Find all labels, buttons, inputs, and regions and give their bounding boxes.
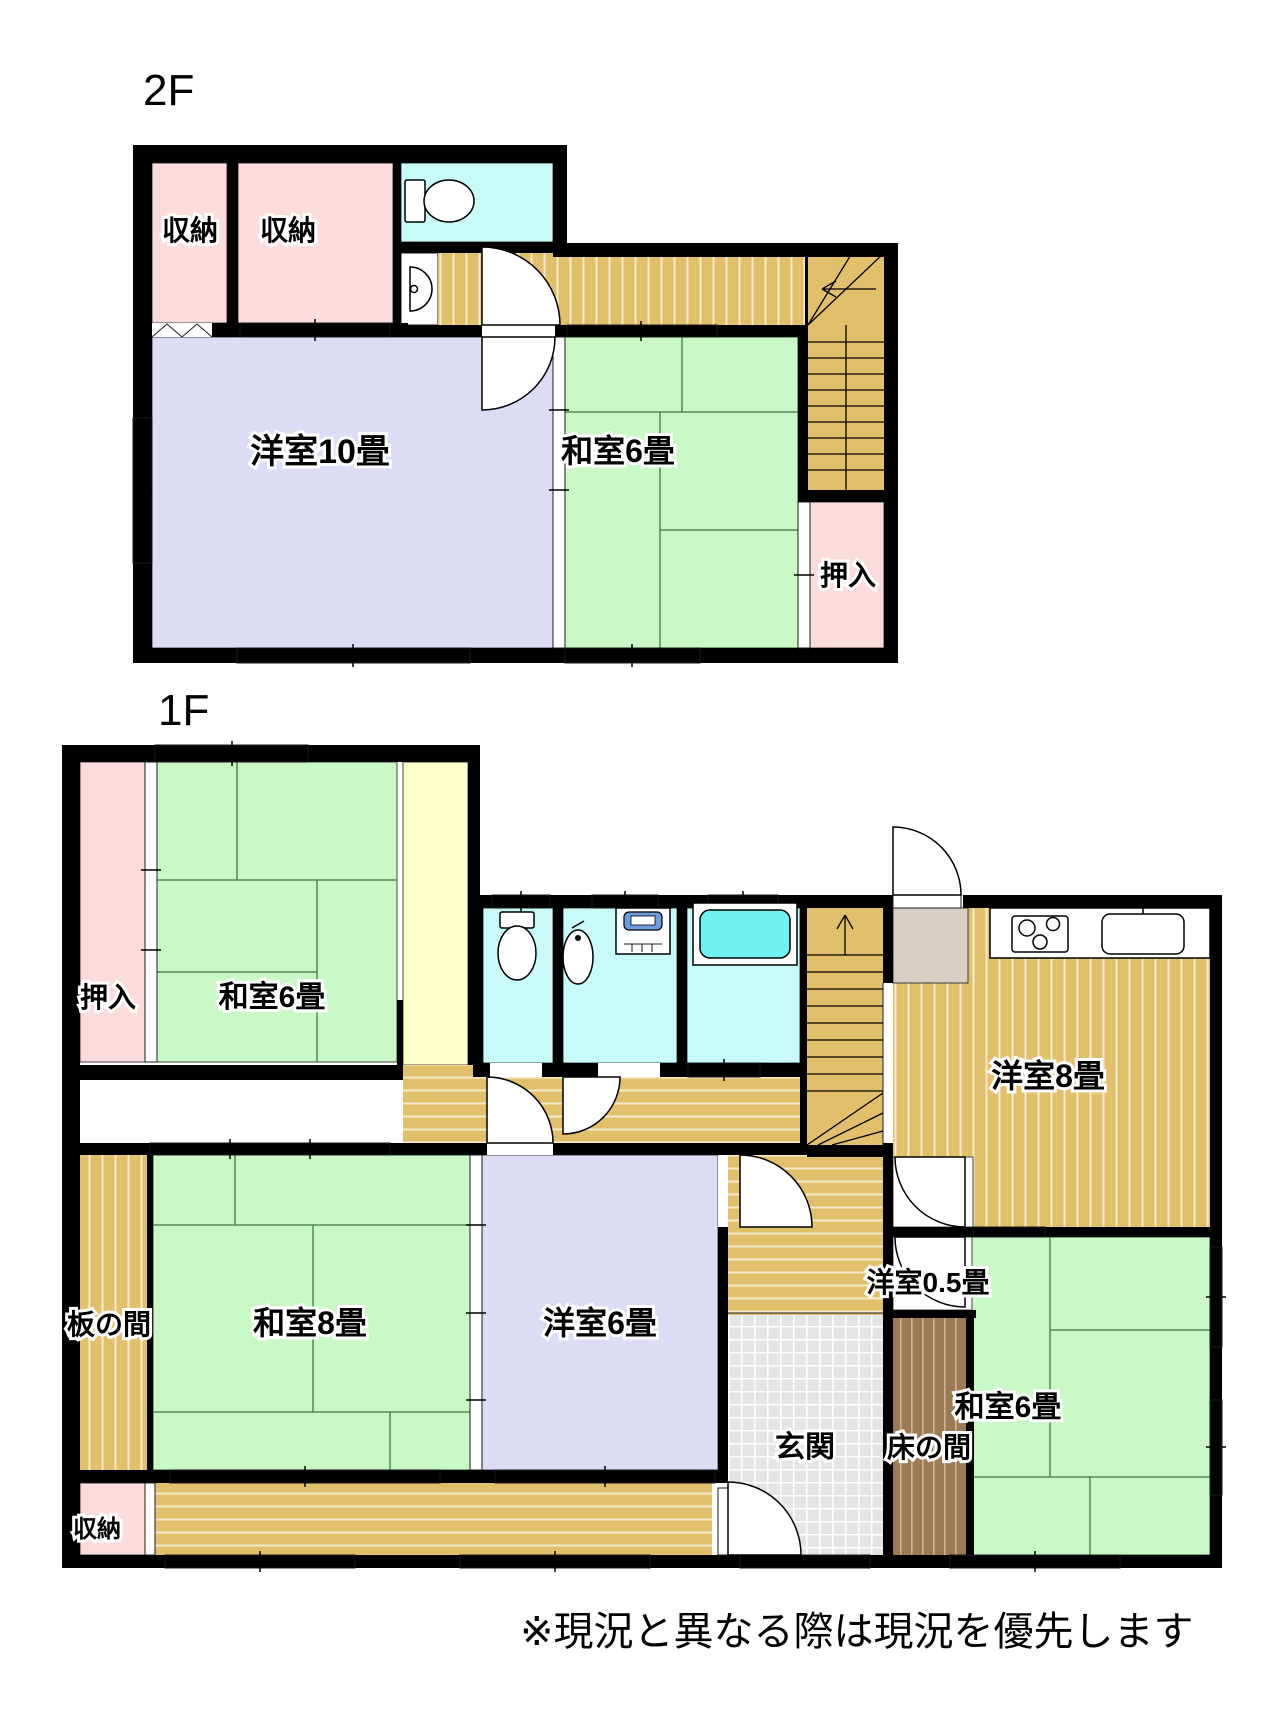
rooms-1f [80,762,1210,1555]
door-arc-main-entrance [893,827,961,895]
floor-plan-drawing: 2F 収納 収納 洋室10畳 和室6畳 押入 [0,0,1280,1722]
corridor-yellow [403,762,468,1065]
label-western-10: 洋室10畳 [250,432,390,471]
label-closet-a: 収納 [162,214,218,246]
floor-1f: 1F 押入 和室6畳 洋室8畳 洋室0.5畳 板の間 和室8畳 洋室6畳 玄関 … [62,686,1226,1572]
washing-machine-icon [616,908,670,954]
pantry-space [893,908,968,983]
disclaimer-note: ※現況と異なる際は現況を優先します [520,1610,1194,1654]
label-itanoma: 板の間 [67,1309,151,1340]
bathtub-icon [693,903,797,965]
gas-stove-icon [1012,916,1068,952]
toilet-icon [498,912,536,980]
floor-2f: 2F 収納 収納 洋室10畳 和室6畳 押入 [133,66,898,667]
label-japanese-6-nw: 和室6畳 [219,980,326,1014]
label-oshiire-1f: 押入 [80,981,136,1013]
label-western-6: 洋室6畳 [543,1305,657,1341]
label-closet-b: 収納 [260,214,316,246]
room-oshiire-1f [80,762,145,1062]
floor-label-2f: 2F [143,66,194,115]
label-kitchen-western-8: 洋室8畳 [991,1058,1105,1094]
sliding-door-rooms-2f [553,337,565,648]
label-western-0-5: 洋室0.5畳 [867,1266,990,1298]
label-tokonoma: 床の間 [887,1431,971,1463]
label-oshiire-2f: 押入 [820,559,876,591]
label-japanese-6-se: 和室6畳 [955,1390,1062,1424]
floor-plan-page: 2F 収納 収納 洋室10畳 和室6畳 押入 [0,0,1280,1722]
label-japanese-6-2f: 和室6畳 [561,433,675,469]
room-japanese-6-nw [157,762,397,1062]
sliding-door-oshiire-1f [145,762,157,1062]
toilet-icon [405,180,474,222]
label-genkan: 玄関 [775,1430,835,1464]
floor-label-1f: 1F [158,686,209,735]
label-japanese-8: 和室8畳 [253,1305,367,1341]
label-storage-1f: 収納 [73,1515,121,1543]
engawa-corridor [155,1483,712,1555]
